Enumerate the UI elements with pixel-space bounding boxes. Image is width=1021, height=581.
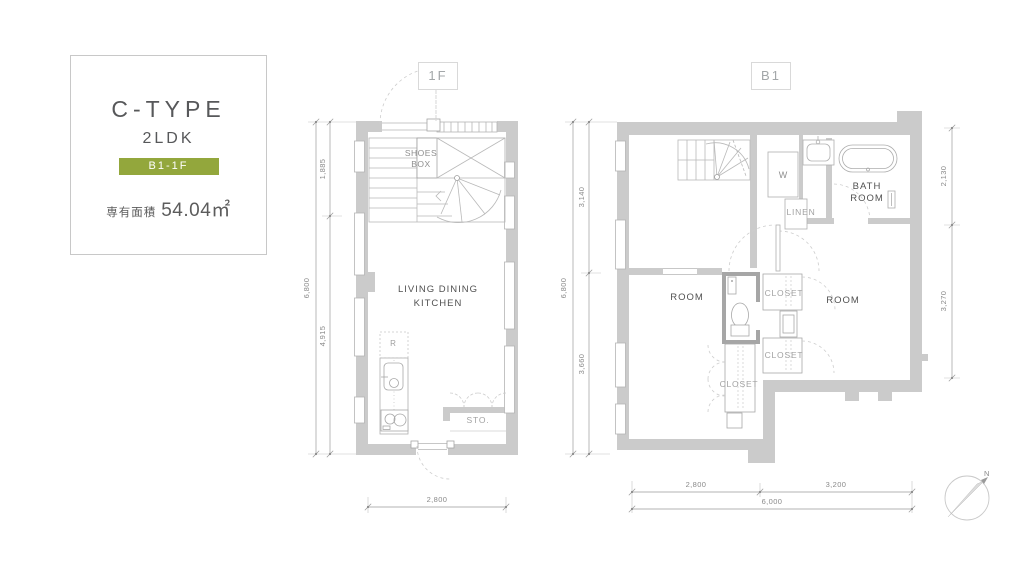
floor-tag-b1: B1 — [751, 62, 791, 90]
dim-b1-bottom-total: 6,000 — [742, 496, 802, 508]
dim-1f-width: 2,800 — [407, 494, 467, 506]
toilet-room — [722, 272, 760, 344]
dim-b1-right-upper: 2,130 — [938, 146, 950, 206]
label-shoes-box: SHOES BOX — [381, 148, 461, 170]
toilet — [732, 303, 749, 327]
dim-1f-upper-height: 1,885 — [317, 139, 329, 199]
label-washer: W — [773, 170, 793, 180]
label-bath-room: BATH ROOM — [837, 181, 897, 206]
dim-b1-total-height: 6,800 — [558, 258, 570, 318]
compass-icon — [945, 476, 989, 520]
floor-range-badge: B1-1F — [119, 158, 219, 175]
dim-b1-upper-height: 3,140 — [576, 167, 588, 227]
dim-b1-right-lower: 3,270 — [938, 271, 950, 331]
label-room-left: ROOM — [647, 291, 727, 305]
label-refrigerator: R — [383, 339, 403, 348]
label-storage: STO. — [448, 415, 508, 426]
area-label: 専有面積 — [106, 204, 156, 220]
dim-1f-total-height: 6,800 — [301, 258, 313, 318]
dim-b1-lower-height: 3,660 — [576, 334, 588, 394]
north-label: N — [984, 469, 989, 478]
windows-1f — [355, 141, 515, 423]
label-living-dining-kitchen: LIVING DINING KITCHEN — [368, 283, 508, 312]
staircase-b1 — [678, 140, 750, 180]
bottom-door-1f — [411, 441, 454, 479]
area-row: 専有面積 54.04㎡ — [106, 195, 231, 222]
label-linen: LINEN — [776, 207, 826, 218]
dim-b1-bottom-left: 2,800 — [666, 479, 726, 491]
floor-tag-1f: 1F — [418, 62, 458, 90]
label-closet-left: CLOSET — [704, 379, 774, 390]
hall-door-arcs — [729, 225, 819, 271]
dim-1f-lower-height: 4,915 — [317, 306, 329, 366]
kitchen-sink — [384, 363, 403, 390]
area-value: 54.04㎡ — [161, 195, 231, 222]
plan-layout: 2LDK — [142, 130, 194, 148]
dim-b1-bottom-right: 3,200 — [806, 479, 866, 491]
entrance-1f — [382, 119, 497, 132]
plan-type-title: C-TYPE — [111, 96, 225, 123]
label-closet-right-bottom: CLOSET — [749, 350, 819, 361]
label-closet-right-top: CLOSET — [749, 288, 819, 299]
plan-info-card: C-TYPE 2LDK B1-1F 専有面積 54.04㎡ — [70, 55, 267, 255]
wall-opening-b1 — [663, 269, 697, 275]
floorplan-page: C-TYPE 2LDK B1-1F 専有面積 54.04㎡ 1F B1 SHOE… — [0, 0, 1021, 581]
hall-partition — [776, 225, 780, 271]
